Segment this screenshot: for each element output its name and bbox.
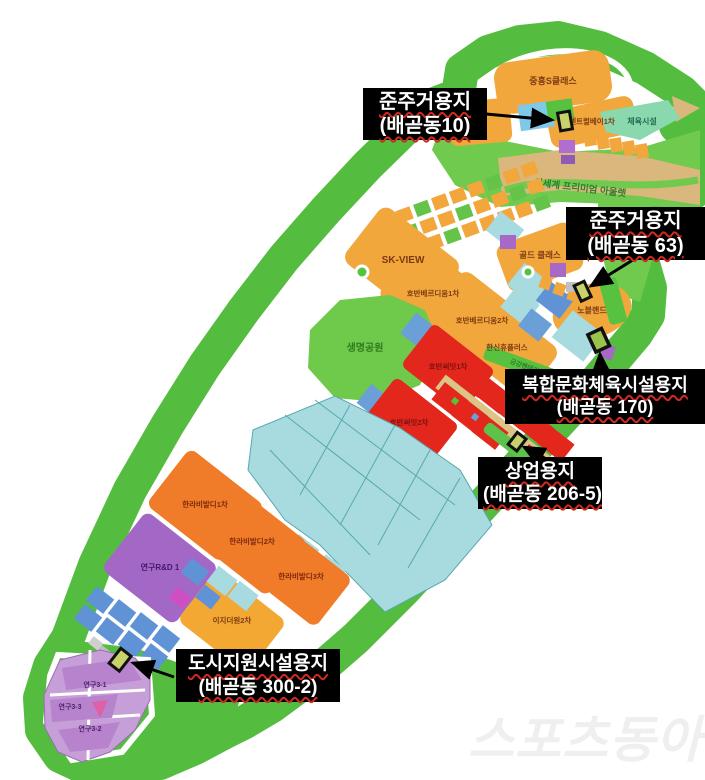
gold-class-label: 골드 클래스 xyxy=(519,250,561,260)
land-use-map-figure: 신세계 프리미엄 아울렛 중흥S클래스 센트럴베이1차 체육시설 xyxy=(0,0,705,780)
skview-label: SK-VIEW xyxy=(382,255,425,266)
lab33-label: 연구3-3 xyxy=(59,702,82,711)
callout-semi-residential-63: 준주거용지 (배곧동 63) xyxy=(566,207,705,260)
callout-title: 상업용지 xyxy=(483,460,597,483)
ezden2-label: 이지더원2차 xyxy=(213,615,252,625)
hanshin-label: 한신휴플러스 xyxy=(486,342,527,352)
callout-lot: (배곧동 63) xyxy=(571,234,700,258)
halla1-label: 한라비발디1차 xyxy=(182,499,228,509)
callout-lot: (배곧동 170) xyxy=(510,397,700,419)
callout-title: 준주거용지 xyxy=(368,90,482,114)
callout-culture-sports-170: 복합문화체육시설용지 (배곧동 170) xyxy=(505,369,705,424)
callout-lot: (배곧동 206-5) xyxy=(483,483,597,506)
callout-title: 도시지원시설용지 xyxy=(181,652,335,675)
centum-label: 센트럴베이1차 xyxy=(569,116,615,126)
jungheung-label: 중흥S클래스 xyxy=(529,75,577,86)
callout-title: 준주거용지 xyxy=(571,209,700,233)
parcel-baegot-10 xyxy=(558,111,573,131)
halla2-label: 한라비발디2차 xyxy=(229,536,275,546)
callout-lot: (배곧동 300-2) xyxy=(181,676,335,699)
summit1-label: 호반써밋1차 xyxy=(429,361,468,371)
lab32-label: 연구3-2 xyxy=(79,724,102,733)
callout-title: 복합문화체육시설용지 xyxy=(510,375,700,397)
halla3-label: 한라비발디3차 xyxy=(278,571,324,581)
sports-donga-watermark: 스포츠동아 xyxy=(468,700,698,772)
callout-lot: (배곧동10) xyxy=(368,114,482,138)
hoban1-label: 호반베르디움1차 xyxy=(407,288,460,298)
nobleland-label: 노블랜드 xyxy=(577,305,607,315)
callout-semi-residential-10: 준주거용지 (배곧동10) xyxy=(363,88,487,140)
rnd1-label: 연구R&D 1 xyxy=(141,562,180,572)
sports-facility-label: 체육시설 xyxy=(627,116,656,126)
hoban2-label: 호반베르디움2차 xyxy=(456,315,509,325)
callout-commercial-206-5: 상업용지 (배곧동 206-5) xyxy=(478,457,602,509)
callout-city-support-300-2: 도시지원시설용지 (배곧동 300-2) xyxy=(176,649,340,702)
park-label: 생명공원 xyxy=(347,341,384,354)
lab31-label: 연구3-1 xyxy=(84,680,107,689)
